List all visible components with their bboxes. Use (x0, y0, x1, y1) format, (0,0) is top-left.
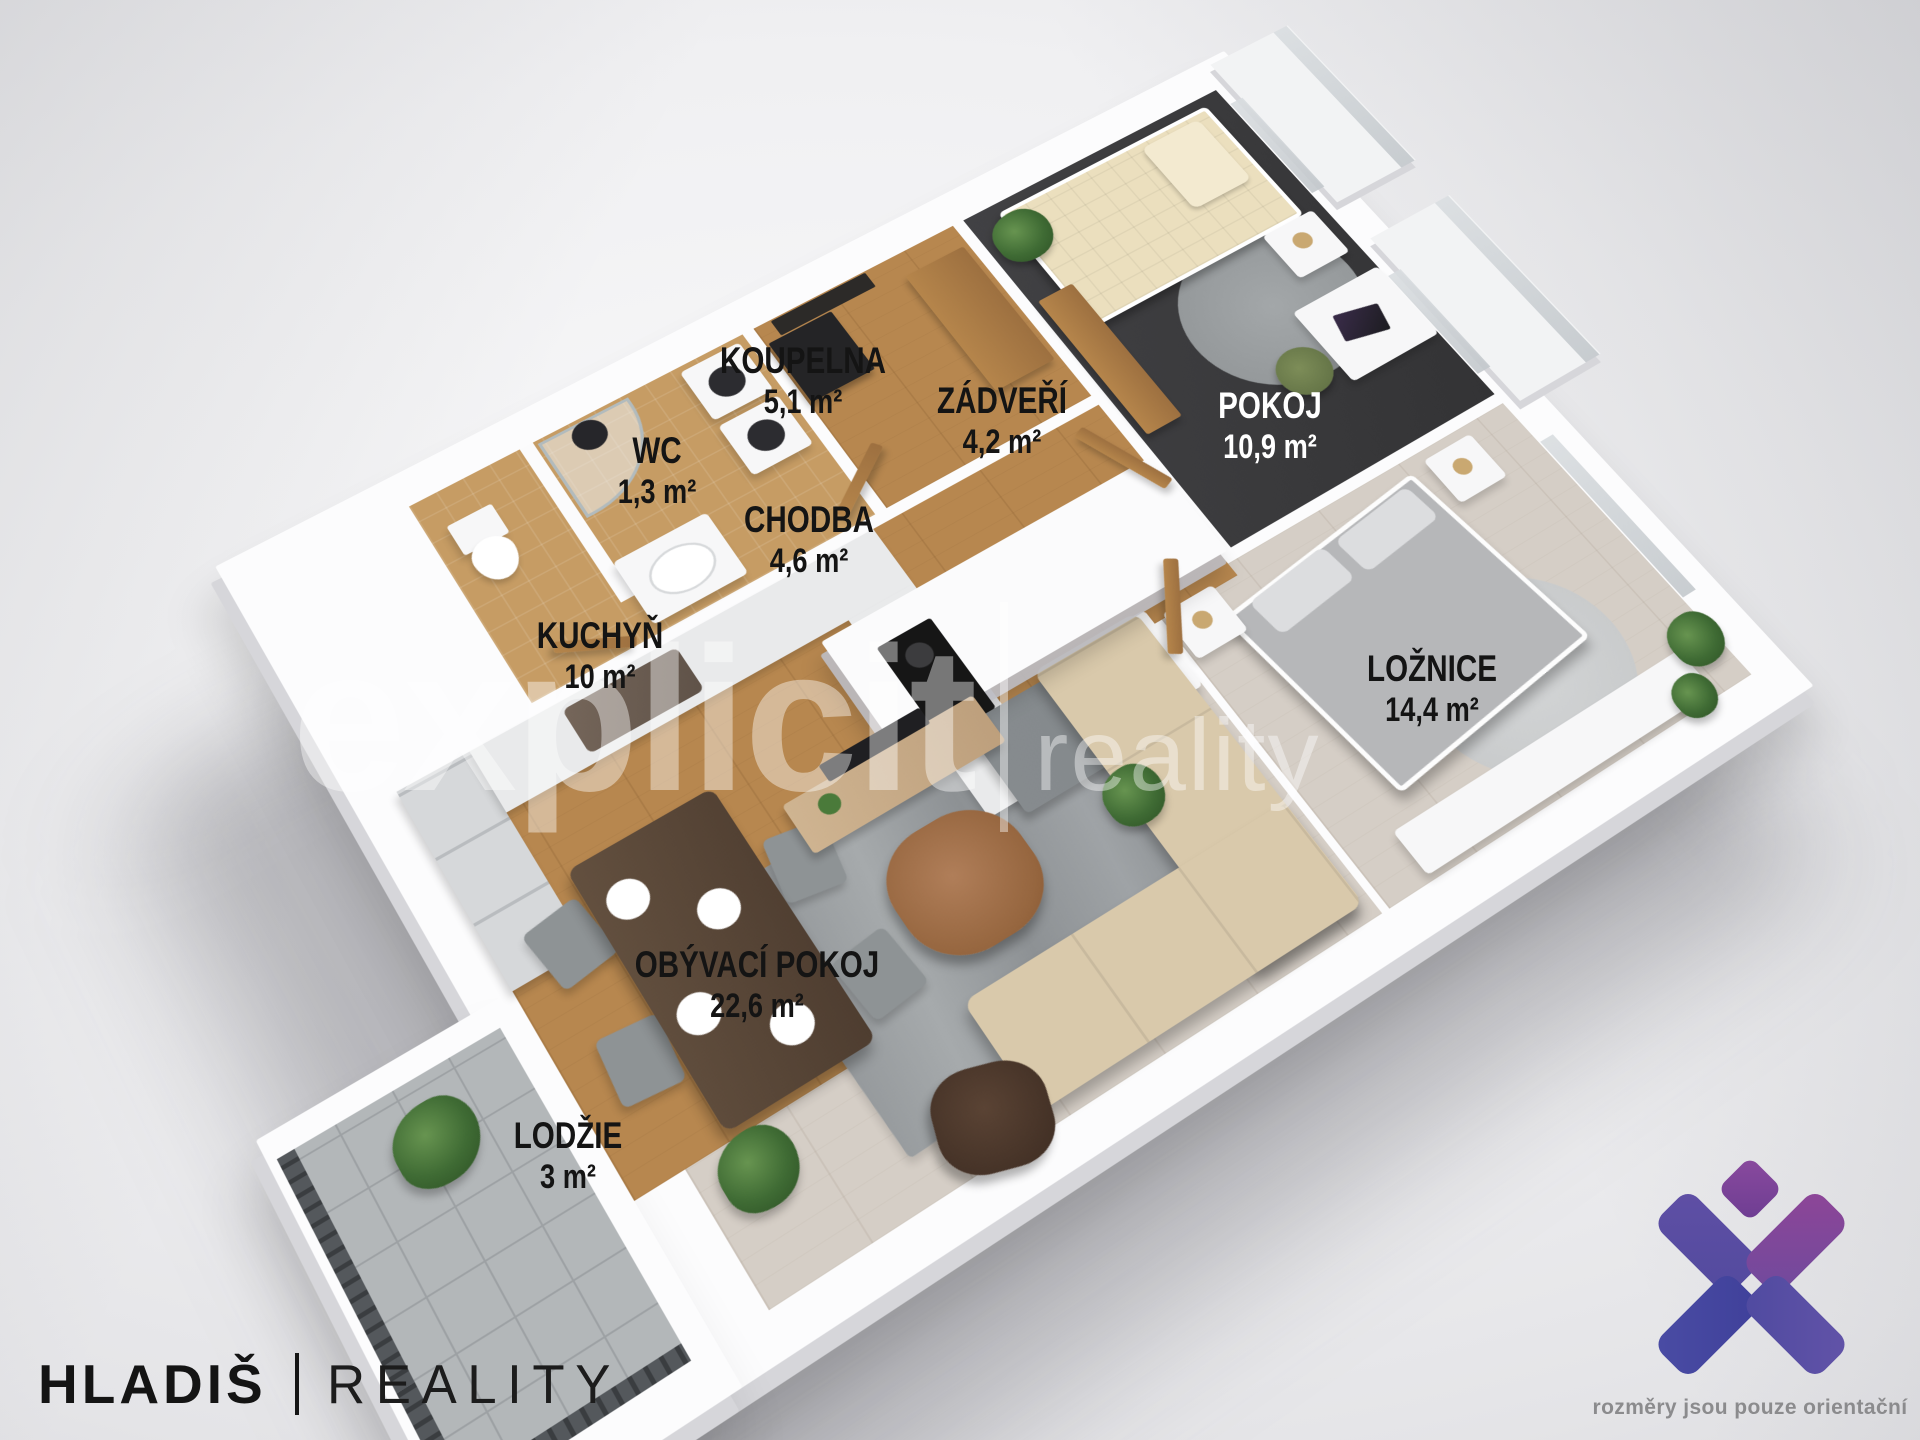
brand-divider-bar (295, 1353, 299, 1415)
room-label-pokoj: POKOJ 10,9 m² (1218, 385, 1322, 467)
watermark: explicit reality (292, 560, 1320, 822)
brand-name: HLADIŠ (38, 1352, 267, 1416)
room-label-chodba: CHODBA 4,6 m² (744, 499, 874, 581)
logo-arm-icon (1741, 1270, 1851, 1380)
room-label-lodzie: LODŽIE 3 m² (514, 1115, 623, 1197)
watermark-divider-bar (1000, 602, 1008, 832)
logo-arm-icon (1653, 1270, 1763, 1380)
disclaimer-note: rozměry jsou pouze orientační (1585, 1396, 1915, 1420)
brand-suffix: REALITY (327, 1352, 621, 1416)
brand-logo: HLADIŠ REALITY (38, 1352, 633, 1416)
room-label-koupelna: KOUPELNA 5,1 m² (720, 340, 886, 422)
award-badge: R REALIŤÁK ROKU 2024 1.místo Uherské Hra… (0, 1130, 520, 1360)
room-label-zadveri: ZÁDVEŘÍ 4,2 m² (937, 380, 1067, 462)
explicit-reality-logo-icon (1640, 1155, 1880, 1385)
room-label-kuchyn: KUCHYŇ 10 m² (537, 615, 664, 697)
logo-diamond-icon (1717, 1156, 1782, 1221)
room-label-wc: WC 1,3 m² (618, 430, 697, 512)
room-label-loznice: LOŽNICE 14,4 m² (1367, 648, 1497, 730)
room-label-obyvaci-pokoj: OBÝVACÍ POKOJ 22,6 m² (635, 944, 880, 1026)
floorplan-render: explicit reality KOUPELNA 5,1 m² WC 1,3 … (0, 0, 1920, 1440)
watermark-right: reality (1034, 704, 1320, 806)
